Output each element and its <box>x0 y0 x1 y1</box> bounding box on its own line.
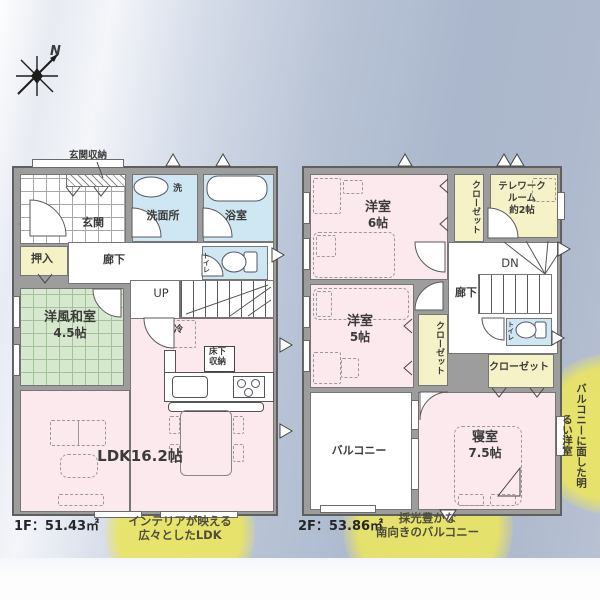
window <box>303 238 310 270</box>
fridge-space <box>165 320 196 348</box>
room-closet-east <box>418 314 448 386</box>
room-washroom <box>132 174 198 242</box>
dining-chair <box>233 444 244 462</box>
room-oshiire <box>20 246 68 276</box>
kitchen-counter-return <box>164 350 176 374</box>
window <box>557 192 565 220</box>
window <box>320 505 376 513</box>
dining-chair <box>233 416 244 434</box>
pillow <box>316 235 336 257</box>
window <box>303 340 310 372</box>
kitchen-sink <box>172 376 208 398</box>
window <box>94 511 142 518</box>
stove-burner <box>244 388 253 397</box>
compass: N <box>10 42 74 102</box>
room-toilet-1f <box>202 246 268 280</box>
bottom-margin-strip <box>0 558 600 600</box>
floorplan-canvas: N <box>0 0 600 600</box>
floor-1f <box>12 166 278 516</box>
dining-chair <box>169 444 180 462</box>
pillow <box>458 494 484 506</box>
pillow <box>490 494 516 506</box>
dining-table <box>180 410 232 476</box>
side-table <box>343 180 363 194</box>
balcony-window <box>411 438 419 490</box>
entrance-step <box>32 159 124 168</box>
window <box>303 296 310 328</box>
room-closet-south <box>488 354 554 388</box>
pillow <box>316 291 332 317</box>
tv-board <box>58 494 104 506</box>
compass-star-icon <box>10 42 74 102</box>
stairs-up-1f <box>180 280 274 318</box>
window <box>160 511 238 518</box>
window <box>303 192 310 224</box>
compass-label: N <box>50 44 61 60</box>
sofa <box>50 420 106 446</box>
desk <box>313 178 341 214</box>
coffee-table <box>60 454 98 478</box>
dining-chair <box>169 416 180 434</box>
stairs-down-2f <box>478 274 552 314</box>
desk <box>313 352 341 384</box>
room-bathroom <box>203 174 274 242</box>
telework-desk <box>532 178 556 202</box>
window <box>13 344 20 376</box>
room-closet-north <box>454 174 484 242</box>
room-toilet-2f <box>506 318 552 346</box>
underfloor-storage-box <box>204 346 235 372</box>
genkan-storage-shelf <box>66 174 126 187</box>
room-balcony <box>310 392 412 510</box>
side-table <box>341 358 359 378</box>
balcony-door <box>411 400 419 430</box>
window <box>13 296 20 328</box>
stove-burner <box>237 379 246 388</box>
room-tatami <box>20 288 124 386</box>
floor-2f <box>302 166 562 516</box>
label-area-1f: 1F：51.43㎡ <box>14 519 99 535</box>
window <box>556 416 565 456</box>
stove-burner <box>251 379 260 388</box>
